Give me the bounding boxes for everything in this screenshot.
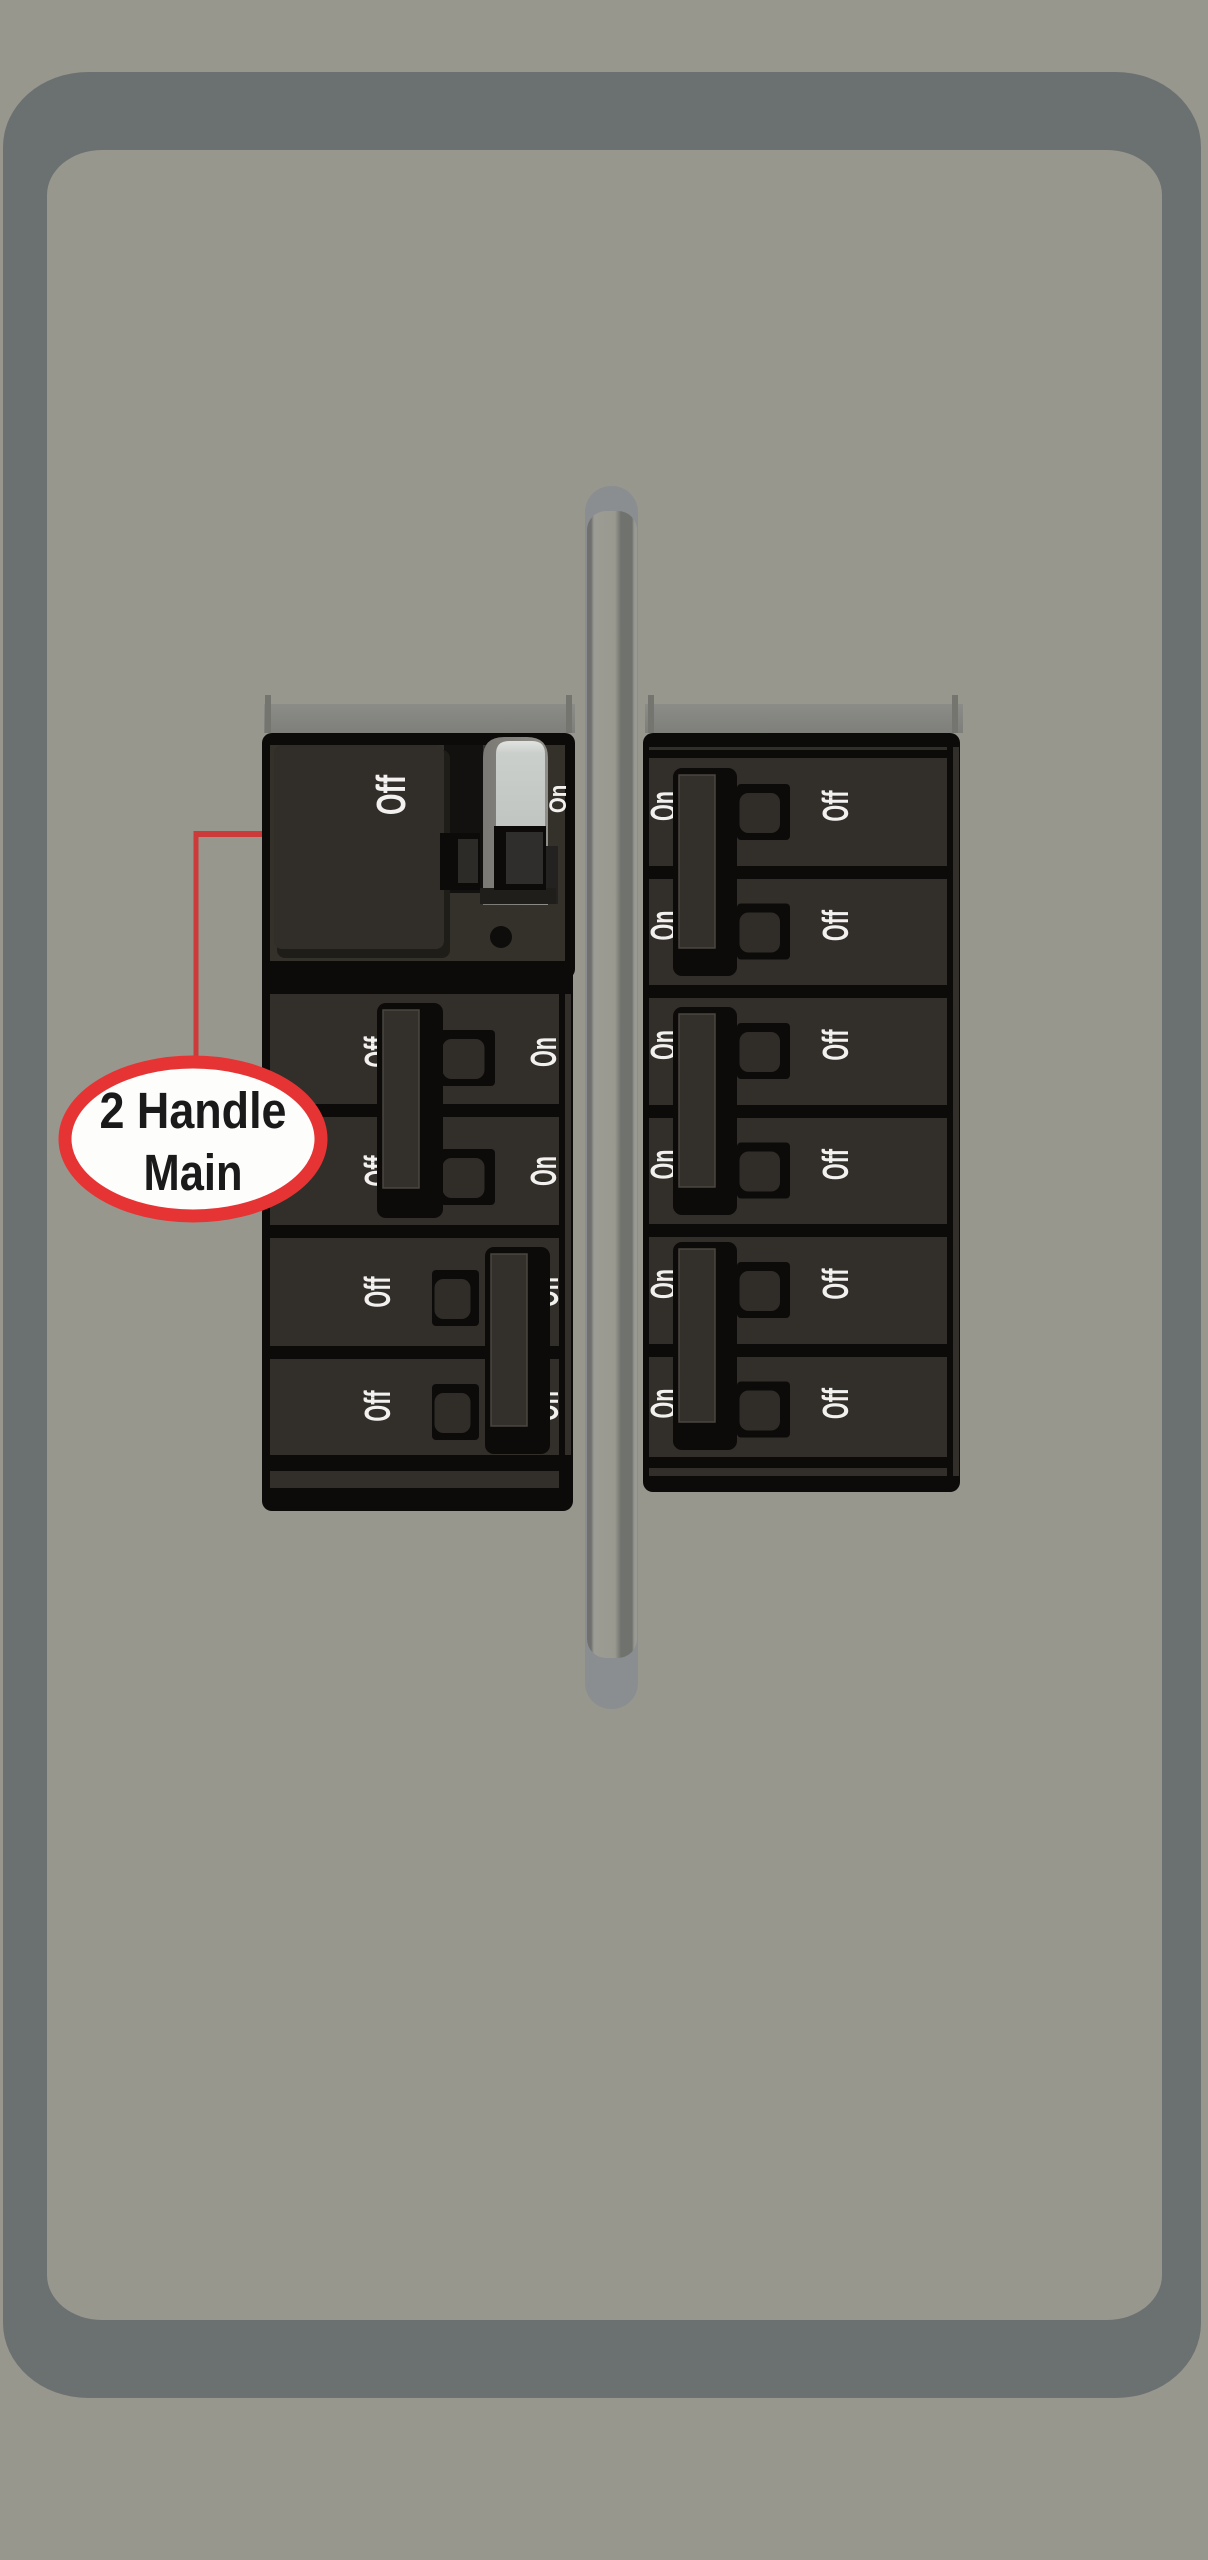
svg-text:On: On [544,785,571,813]
svg-text:On: On [524,1037,564,1067]
svg-text:Off: Off [816,790,856,821]
svg-text:2 Handle: 2 Handle [100,1082,287,1139]
svg-text:Off: Off [816,910,856,941]
svg-text:On: On [524,1156,564,1186]
svg-text:Off: Off [816,1149,856,1180]
svg-text:Off: Off [369,775,415,816]
svg-text:Off: Off [816,1388,856,1419]
svg-text:Off: Off [816,1268,856,1299]
svg-text:Off: Off [358,1390,398,1421]
svg-text:Off: Off [816,1029,856,1060]
svg-text:Main: Main [144,1144,243,1201]
svg-text:Off: Off [358,1276,398,1307]
